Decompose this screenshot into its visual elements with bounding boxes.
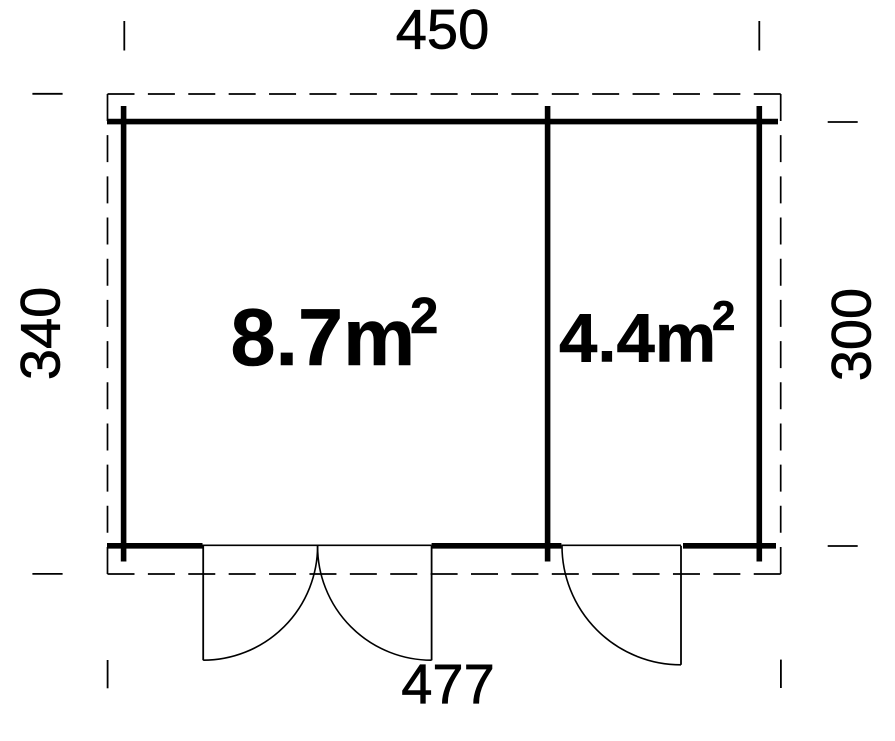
svg-text:4.4m: 4.4m xyxy=(559,300,716,377)
svg-text:2: 2 xyxy=(410,287,438,344)
svg-text:2: 2 xyxy=(712,292,735,339)
svg-text:300: 300 xyxy=(819,288,882,381)
svg-text:450: 450 xyxy=(396,0,489,60)
svg-text:340: 340 xyxy=(8,287,71,380)
svg-text:477: 477 xyxy=(401,652,494,715)
svg-text:8.7m: 8.7m xyxy=(231,293,416,383)
